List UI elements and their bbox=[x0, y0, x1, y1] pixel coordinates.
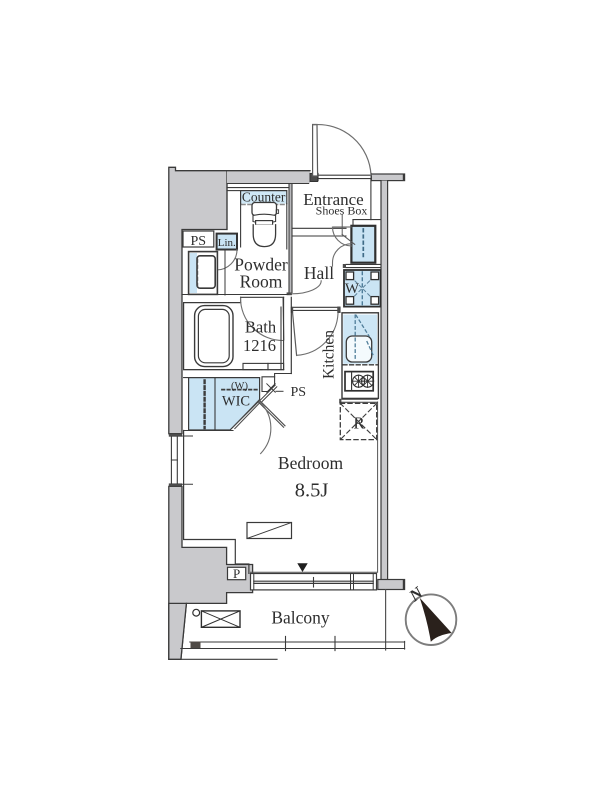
svg-text:W: W bbox=[345, 281, 360, 297]
svg-text:WIC: WIC bbox=[222, 394, 250, 410]
svg-text:Room: Room bbox=[240, 271, 283, 291]
svg-text:R: R bbox=[353, 413, 365, 432]
svg-text:Shoes Box: Shoes Box bbox=[316, 203, 368, 217]
svg-text:Kitchen: Kitchen bbox=[321, 330, 338, 379]
svg-text:8.5J: 8.5J bbox=[295, 480, 329, 502]
svg-text:PS: PS bbox=[191, 234, 207, 249]
svg-text:Lin.: Lin. bbox=[218, 237, 236, 249]
svg-text:Hall: Hall bbox=[304, 263, 334, 283]
svg-text:Bath: Bath bbox=[245, 318, 277, 337]
svg-text:Balcony: Balcony bbox=[271, 607, 330, 627]
svg-text:(W): (W) bbox=[231, 381, 248, 392]
svg-text:P: P bbox=[233, 566, 240, 581]
svg-text:PS: PS bbox=[291, 385, 307, 400]
svg-text:Bedroom: Bedroom bbox=[278, 453, 344, 473]
svg-text:1216: 1216 bbox=[243, 336, 276, 355]
